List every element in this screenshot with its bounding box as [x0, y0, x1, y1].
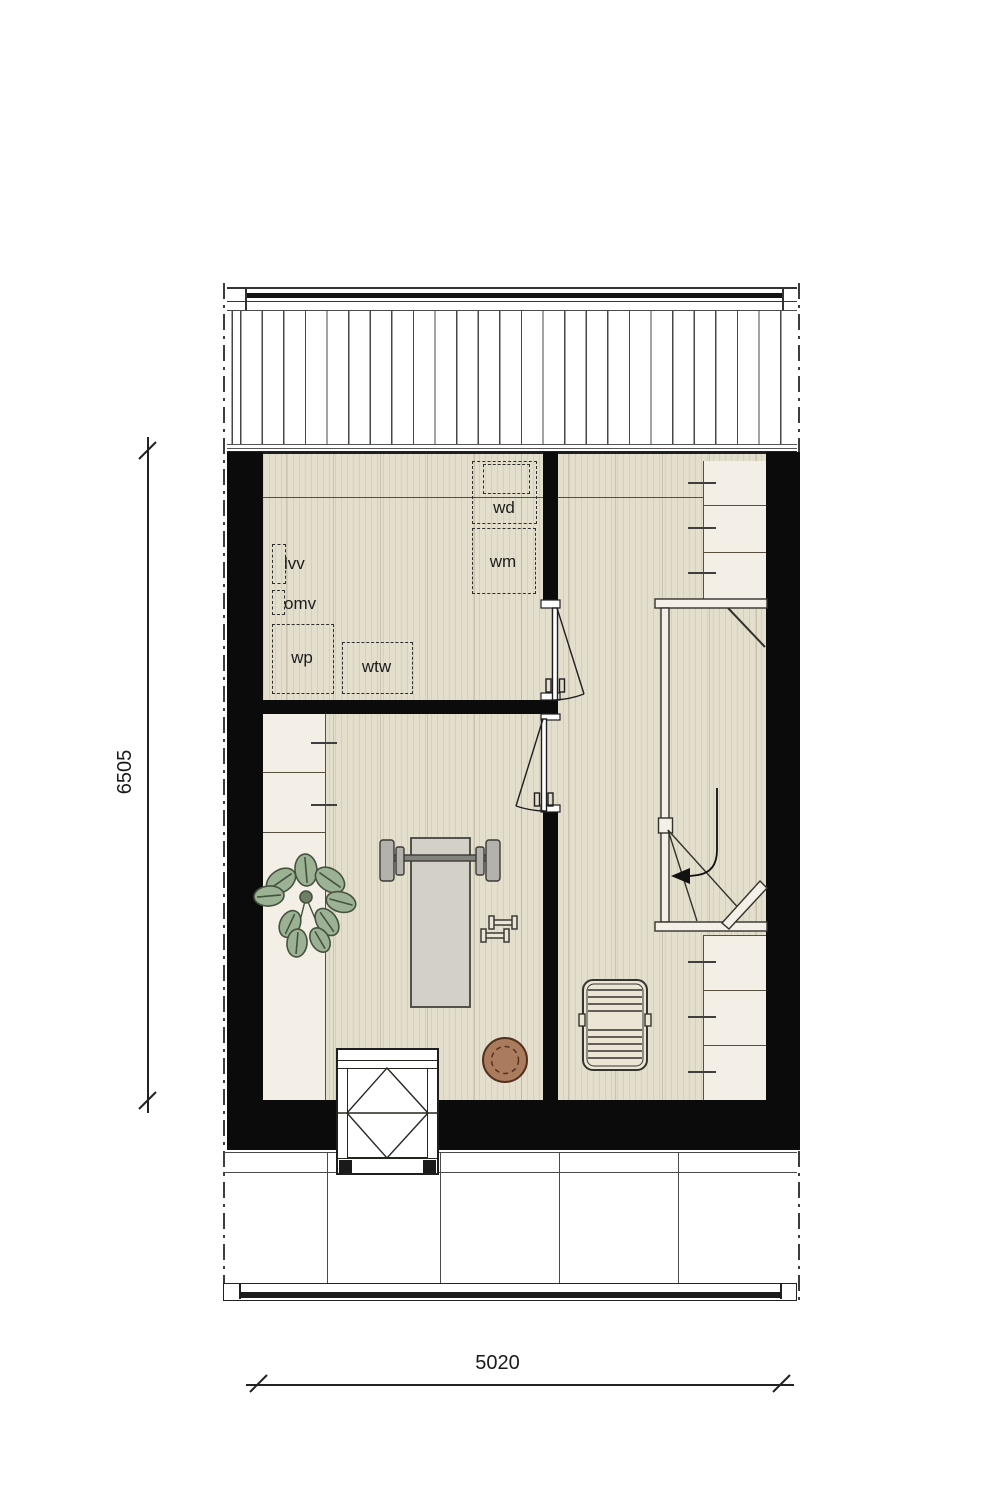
stairwell — [655, 599, 767, 931]
stair-top-diagonal — [728, 608, 765, 647]
door-upper-handle-1 — [546, 679, 551, 692]
roof-window-glazing — [336, 1068, 439, 1158]
stair-arrow-path — [690, 788, 717, 876]
floor-plan-canvas: wd wm lvv omv wp wtw — [0, 0, 1000, 1500]
stair-direction-arrow — [671, 788, 717, 884]
dumbbell-2-end-a — [481, 929, 486, 942]
door-upper-handle-2 — [560, 679, 565, 692]
barbell-plate-left — [380, 840, 394, 881]
dumbbell-1-bar — [493, 920, 513, 925]
barbell-collar-right — [476, 847, 484, 875]
barbell-plate-right — [486, 840, 500, 881]
plant — [253, 853, 358, 958]
dim-tick-vertical-top — [139, 442, 156, 459]
lounge-chair-pivot-left — [579, 1014, 585, 1026]
door-lower-swing-arc — [516, 806, 544, 811]
stair-rail-bottom — [655, 922, 767, 931]
door-lower-handle-2 — [548, 793, 553, 806]
linework-overlay — [0, 0, 1000, 1500]
medicine-ball — [483, 1038, 527, 1082]
door-upper-swing-line — [557, 608, 584, 694]
door-upper — [546, 608, 584, 700]
dumbbell-1-end-b — [512, 916, 517, 929]
dumbbell-1-end-a — [489, 916, 494, 929]
workout-bench — [411, 838, 470, 1007]
door-lower — [516, 719, 553, 811]
dim-tick-horizontal-left — [250, 1375, 267, 1392]
dim-tick-vertical-bottom — [139, 1092, 156, 1109]
dumbbell-2-end-b — [504, 929, 509, 942]
medicine-ball-outer — [483, 1038, 527, 1082]
stair-rail-left — [661, 608, 669, 922]
lounge-chair-pivot-right — [645, 1014, 651, 1026]
lounge-chair-frame — [583, 980, 647, 1070]
door-jamb-1 — [541, 600, 560, 608]
door-lower-handle-1 — [535, 793, 540, 806]
bench-pad — [411, 838, 470, 1007]
barbell-collar-left — [396, 847, 404, 875]
dumbbell-2-bar — [485, 933, 505, 938]
door-lower-leaf — [542, 719, 547, 811]
plant-center — [300, 891, 312, 903]
dim-tick-horizontal-right — [773, 1375, 790, 1392]
lounge-chair — [579, 980, 651, 1070]
stair-rail-post — [659, 818, 673, 833]
stair-winder-line-2 — [668, 830, 742, 912]
stair-rail-top — [655, 599, 767, 608]
dumbbells — [481, 916, 517, 942]
door-upper-leaf — [553, 608, 558, 700]
